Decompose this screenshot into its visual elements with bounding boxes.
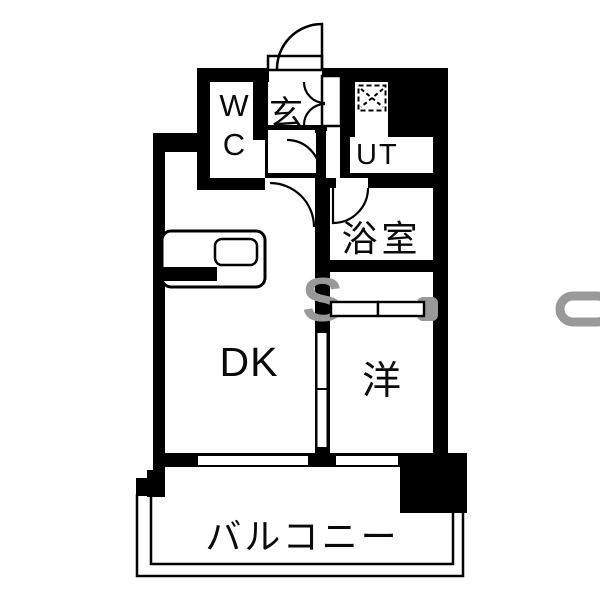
dk-floor: [165, 152, 315, 453]
watermark-letter: S: [302, 266, 343, 335]
wc-door-opening: [253, 140, 265, 178]
dining-kitchen-label: DK: [178, 339, 320, 386]
balcony-label: バルコニー: [151, 508, 454, 560]
watermark-fragment: [560, 296, 600, 322]
wall: [315, 188, 330, 272]
floor-plan: S: [0, 0, 600, 600]
wall: [153, 133, 165, 497]
window: [336, 456, 398, 465]
kitchen-sink: [215, 239, 257, 265]
wall: [265, 130, 268, 178]
bathroom-label: 浴室: [330, 210, 433, 262]
wall: [316, 125, 327, 178]
passage-opening: [326, 131, 340, 178]
wall: [197, 178, 265, 190]
utility-label: UT: [356, 139, 399, 172]
kitchen-counter-base: [153, 267, 217, 281]
wall: [197, 82, 210, 190]
closet-sliding-door: [331, 302, 378, 316]
shoe-cabinet: [322, 76, 341, 126]
western-room-label: 洋: [330, 350, 433, 406]
wall: [136, 478, 147, 496]
wc-label: WC: [216, 86, 252, 164]
hallway-floor: [268, 130, 315, 173]
window: [198, 456, 308, 465]
entrance-opening: [269, 70, 322, 82]
wall: [147, 470, 165, 497]
room-divider-sliding-door: [317, 389, 328, 448]
bathroom-door-opening: [336, 178, 368, 188]
closet-sliding-door: [378, 302, 424, 316]
wall: [265, 173, 316, 178]
entrance-label: 玄: [269, 86, 303, 135]
wall-pillar: [400, 453, 467, 513]
